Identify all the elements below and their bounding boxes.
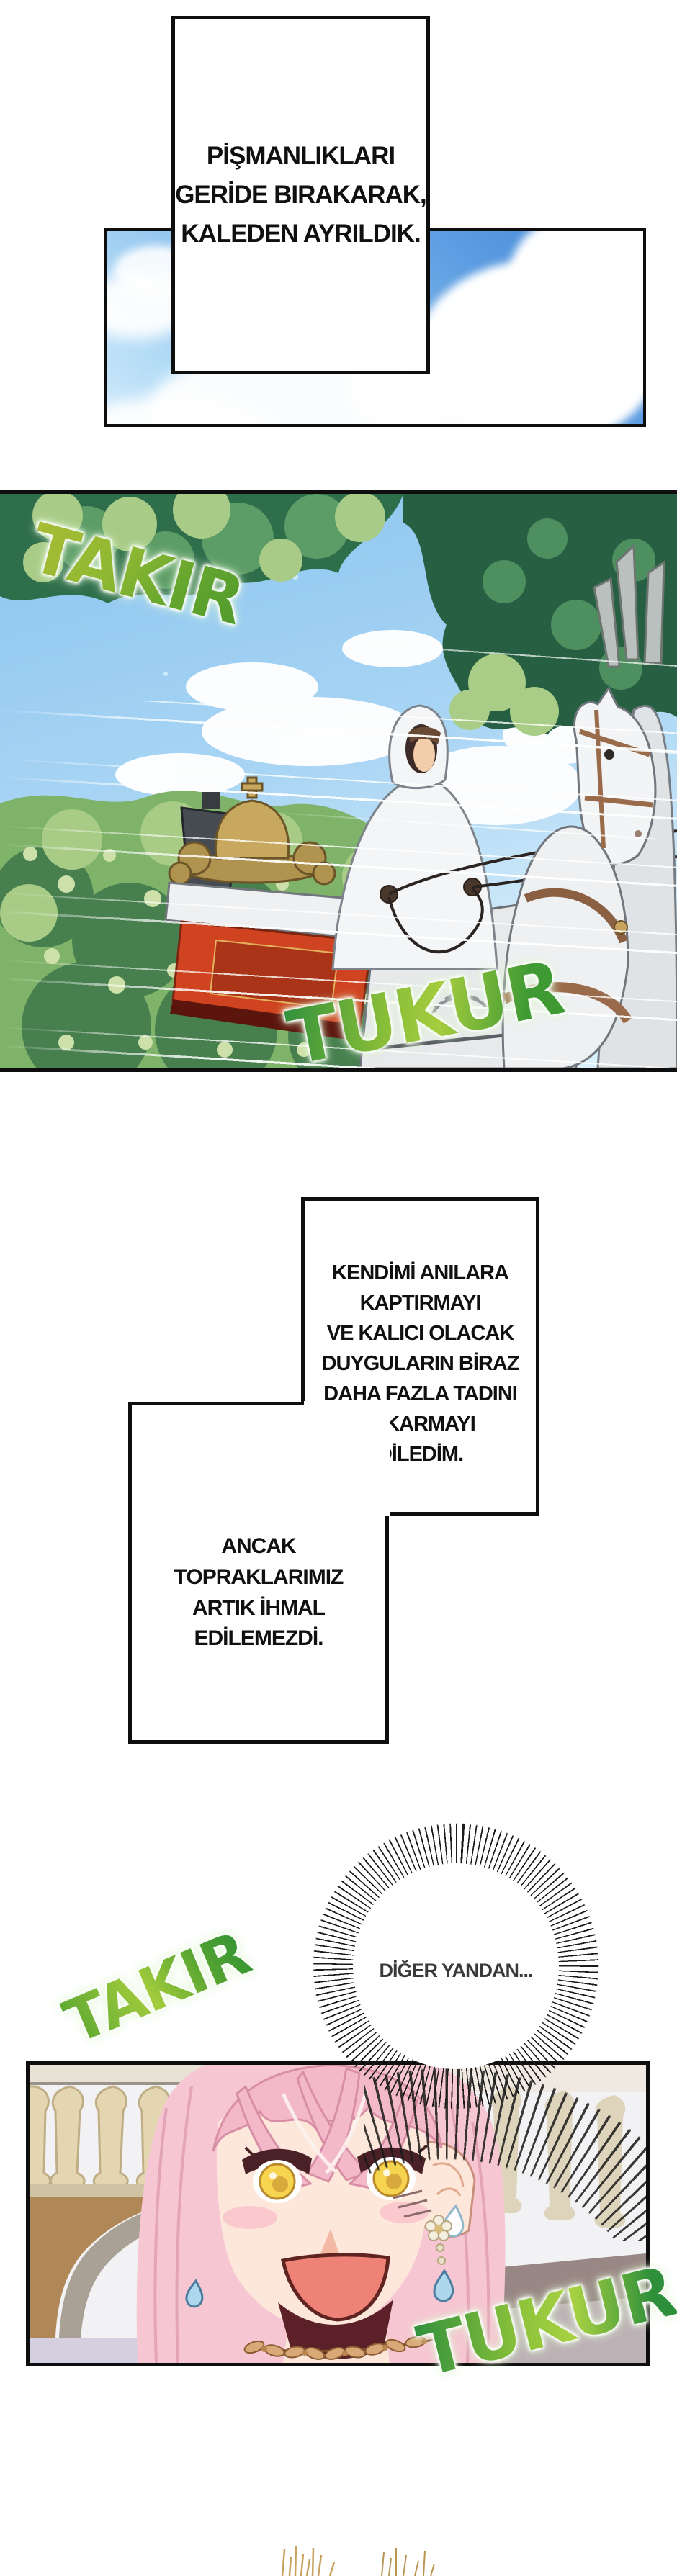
narration-line: KAPTIRMAYI <box>360 1288 481 1318</box>
narration-line: TOPRAKLARIMIZ <box>174 1562 344 1593</box>
box-union-seam <box>300 1405 306 1517</box>
comic-page: PİŞMANLIKLARI GERİDE BIRAKARAK, KALEDEN … <box>0 0 677 2576</box>
narration-line: KALEDEN AYRILDIK. <box>181 215 420 253</box>
horse-eye <box>604 749 614 760</box>
burst-text: DİĞER YANDAN... <box>379 1960 532 1982</box>
grass-tuft <box>274 2545 447 2576</box>
burst-bubble-body: DİĞER YANDAN... <box>353 1863 559 2069</box>
sfx-takir-bottom: TAKIR <box>54 1918 259 2058</box>
narration-line: ARTIK İHMAL <box>192 1593 325 1624</box>
narration-line: EDİLEMEZDİ. <box>194 1623 323 1654</box>
narration-line: DUYGULARIN BİRAZ <box>322 1348 519 1379</box>
narration-line: GERİDE BIRAKARAK, <box>175 176 426 215</box>
narration-line: DİLEDİM. <box>377 1439 463 1469</box>
box-union-seam <box>304 1401 390 1516</box>
narration-line: ANCAK <box>221 1531 295 1562</box>
narration-line: PİŞMANLIKLARI <box>207 137 395 176</box>
narration-line: VE KALICI OLACAK <box>327 1318 514 1348</box>
narration-box-1: PİŞMANLIKLARI GERİDE BIRAKARAK, KALEDEN … <box>171 16 430 374</box>
driver-face <box>413 737 435 772</box>
narration-line: KENDİMİ ANILARA <box>332 1258 508 1288</box>
